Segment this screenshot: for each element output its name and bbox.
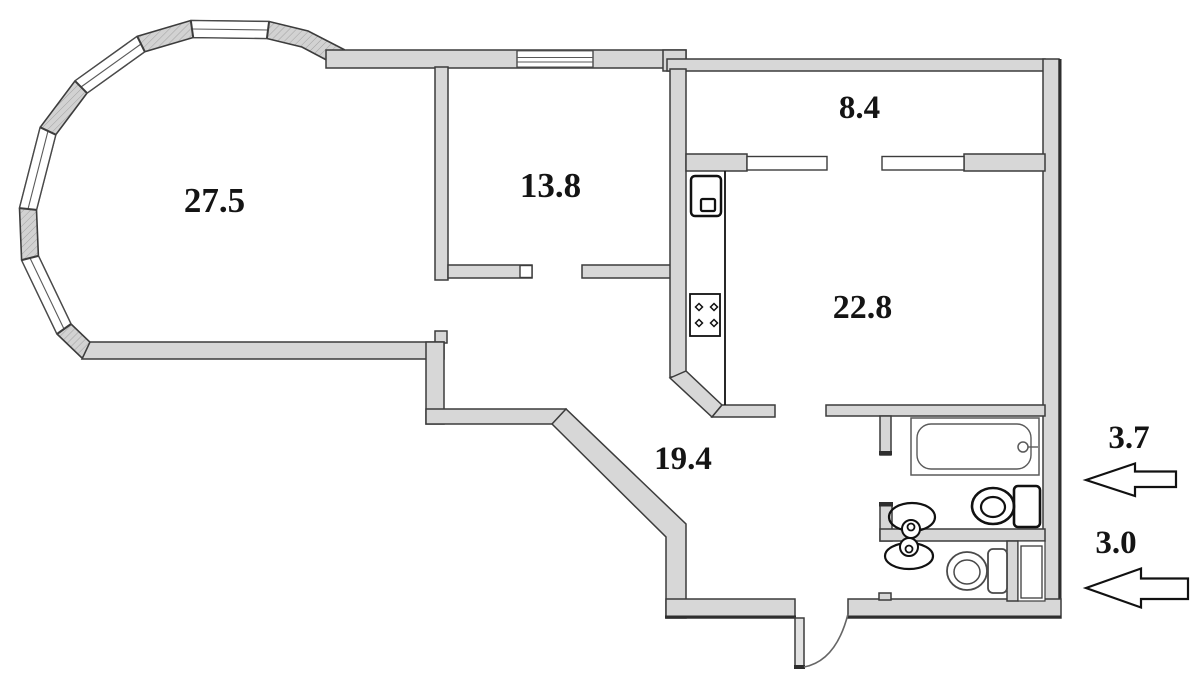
svg-text:3.7: 3.7 <box>1108 420 1149 456</box>
svg-text:19.4: 19.4 <box>654 441 712 477</box>
svg-text:22.8: 22.8 <box>833 289 893 326</box>
svg-text:27.5: 27.5 <box>184 181 245 220</box>
svg-text:13.8: 13.8 <box>520 166 581 205</box>
svg-text:3.0: 3.0 <box>1095 525 1136 561</box>
svg-text:8.4: 8.4 <box>839 90 880 126</box>
